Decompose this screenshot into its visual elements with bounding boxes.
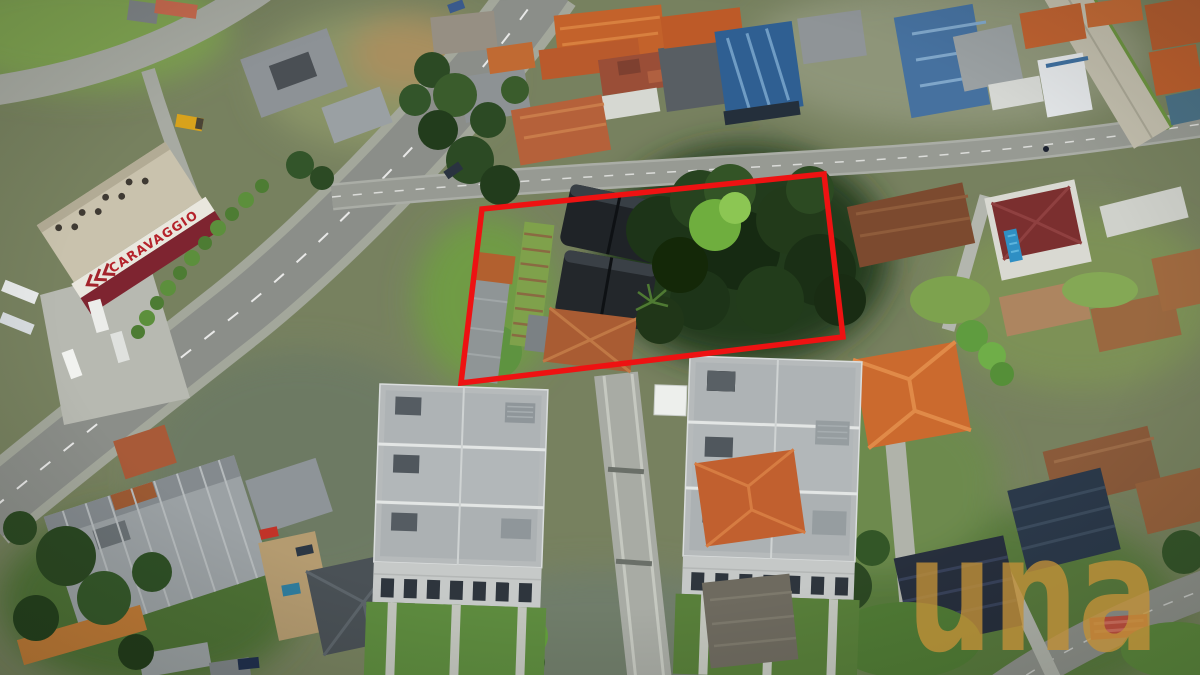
aerial-photo: CARAVAGGIO bbox=[0, 0, 1200, 675]
una-watermark: una bbox=[907, 501, 1159, 675]
aerial-photo-stage: CARAVAGGIO bbox=[0, 0, 1200, 675]
